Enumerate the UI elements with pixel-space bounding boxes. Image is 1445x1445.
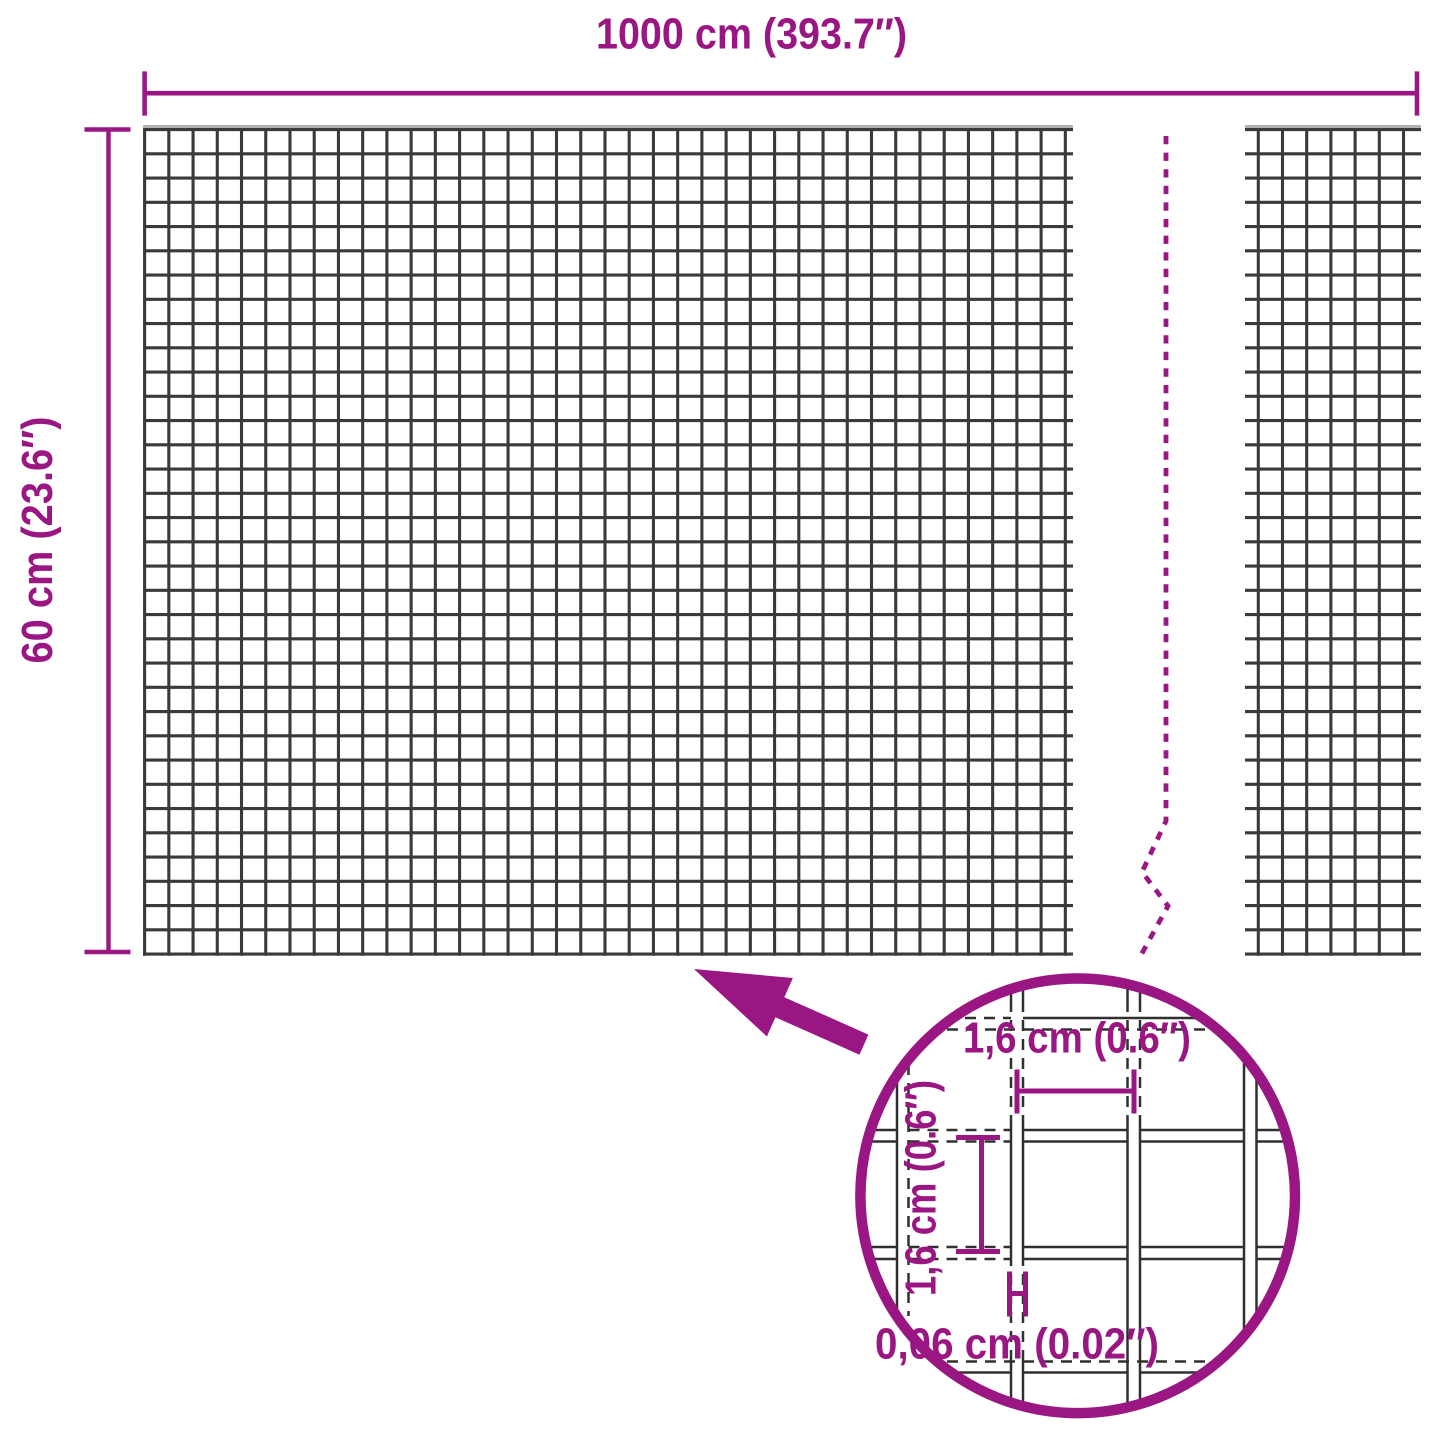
svg-text:1000 cm (393.7″): 1000 cm (393.7″): [596, 10, 907, 59]
svg-text:1,6 cm (0.6″): 1,6 cm (0.6″): [897, 1080, 946, 1296]
svg-text:60 cm (23.6″): 60 cm (23.6″): [13, 417, 62, 664]
svg-text:1,6 cm (0.6″): 1,6 cm (0.6″): [963, 1014, 1191, 1063]
